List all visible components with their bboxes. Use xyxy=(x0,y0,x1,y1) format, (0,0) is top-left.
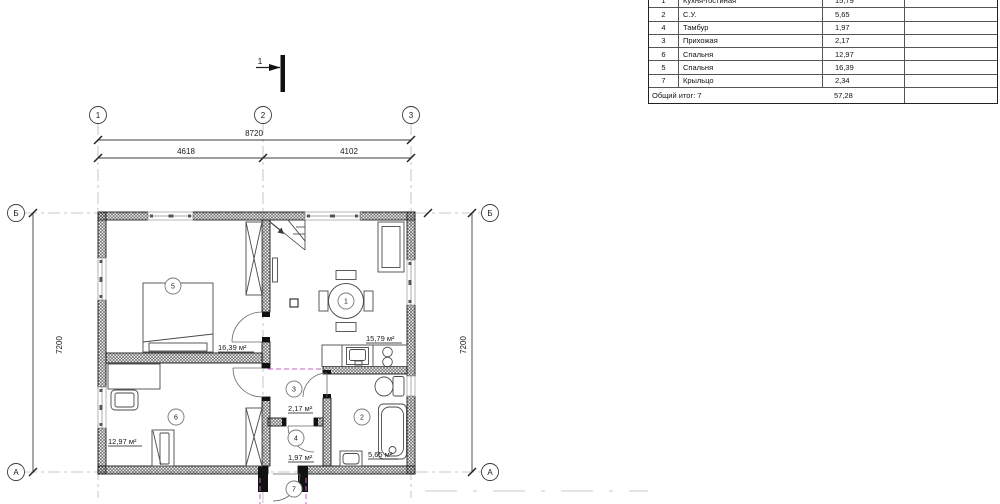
table-row: 5 Спальня 16,39 xyxy=(649,60,997,73)
desk-chair xyxy=(111,390,138,410)
area-bedroom6: 12,97 м² xyxy=(108,437,137,446)
area-kitchen: 15,79 м² xyxy=(366,334,395,343)
area-tambour: 1,97 м² xyxy=(288,453,313,462)
dim-height-right: 7200 xyxy=(459,336,468,354)
wardrobe-bedroom6 xyxy=(246,408,262,466)
dim-total: 8720 xyxy=(245,129,263,138)
stairs-icon xyxy=(268,220,305,250)
window-left-upper xyxy=(98,258,106,300)
furniture xyxy=(108,222,407,466)
window-top-left xyxy=(148,212,193,220)
room-num-7: 7 xyxy=(292,487,296,494)
cabinet-tall xyxy=(378,222,404,272)
room-num-5: 5 xyxy=(171,284,175,291)
axis-2: 2 xyxy=(261,111,266,120)
section-mark: 1 xyxy=(256,55,285,92)
door-bedroom6 xyxy=(233,368,262,397)
room-num-6: 6 xyxy=(174,415,178,422)
bath-sink xyxy=(340,451,362,466)
table-row: 3 Прихожая 2,17 xyxy=(649,34,997,47)
room-num-3: 3 xyxy=(292,387,296,394)
room-num-4: 4 xyxy=(294,436,298,443)
desk xyxy=(108,364,160,389)
area-hall: 2,17 м² xyxy=(288,404,313,413)
table-row: 2 С.У. 5,65 xyxy=(649,7,997,20)
axis-1: 1 xyxy=(96,111,101,120)
table-total-value: 57,28 xyxy=(822,88,904,103)
floor-plan-sheet: 8720 4618 4102 7200 7200 1 1 2 3 Б А Б А xyxy=(0,0,1000,504)
axis-b-left: Б xyxy=(13,209,18,218)
axis-a-right: А xyxy=(487,468,493,477)
table-row: 6 Спальня 12,97 xyxy=(649,47,997,60)
dim-right-span: 4102 xyxy=(340,147,358,156)
bed-single xyxy=(152,430,174,466)
tv-panel xyxy=(273,258,278,282)
window-left-lower xyxy=(98,387,106,428)
axis-a-left: А xyxy=(13,468,19,477)
window-top-right xyxy=(305,212,360,220)
table-total-label: Общий итог: 7 xyxy=(649,88,822,103)
room-num-1: 1 xyxy=(344,299,348,306)
toilet xyxy=(375,377,404,397)
room-schedule-table: 1 Кухня-гостиная 15,79 2 С.У. 5,65 4 Там… xyxy=(648,0,998,104)
utility-box xyxy=(290,299,298,307)
window-right-bath xyxy=(407,376,415,396)
table-row: 4 Тамбур 1,97 xyxy=(649,21,997,34)
table-row: 7 Крыльцо 2,34 xyxy=(649,74,997,87)
section-label: 1 xyxy=(258,56,263,66)
axis-b-right: Б xyxy=(487,209,492,218)
dim-height-left: 7200 xyxy=(55,336,64,354)
table-row: 1 Кухня-гостиная 15,79 xyxy=(649,0,997,7)
bed-double xyxy=(143,283,213,352)
area-bathroom: 5,65 м² xyxy=(368,450,393,459)
area-bedroom5: 16,39 м² xyxy=(218,343,247,352)
table-footer: Общий итог: 7 57,28 xyxy=(649,87,997,103)
door-bathroom xyxy=(303,373,327,397)
kitchen-counter xyxy=(322,345,407,367)
dim-left-span: 4618 xyxy=(177,147,195,156)
window-right-upper xyxy=(407,260,415,305)
room-num-2: 2 xyxy=(360,415,364,422)
axis-3: 3 xyxy=(409,111,414,120)
door-bedroom5 xyxy=(232,312,262,342)
wardrobe-bedroom5 xyxy=(246,222,262,295)
